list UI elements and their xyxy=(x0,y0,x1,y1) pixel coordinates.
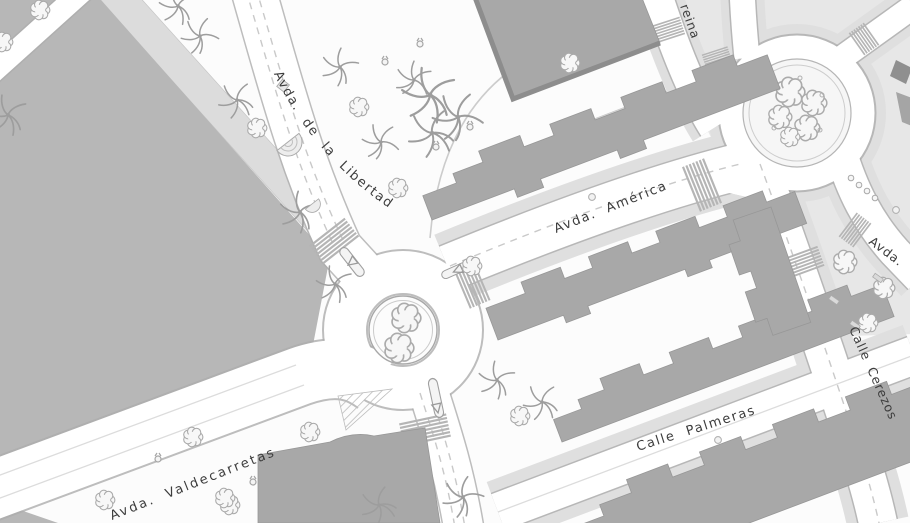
shrub-icon xyxy=(392,303,421,332)
shrub-icon xyxy=(385,333,414,362)
map-viewport[interactable]: Avda. de la Libertad Avda. América Calle… xyxy=(0,0,910,523)
shrub-icon xyxy=(511,406,530,426)
shrub-icon xyxy=(834,250,857,274)
manhole-icon xyxy=(715,437,722,444)
bollard-icon xyxy=(872,195,878,201)
shrub-icon xyxy=(769,105,792,129)
bollard-icon xyxy=(864,188,870,194)
shrub-icon xyxy=(802,90,827,115)
manhole-icon xyxy=(589,194,596,201)
shrub-icon xyxy=(301,422,320,442)
map-canvas[interactable]: Avda. de la Libertad Avda. América Calle… xyxy=(0,0,910,523)
road-north xyxy=(742,0,747,58)
shrub-icon xyxy=(463,256,482,276)
shrub-icon xyxy=(184,427,203,447)
bollard-icon xyxy=(848,175,854,181)
shrub-icon xyxy=(31,0,50,20)
shrub-icon xyxy=(350,97,369,117)
shrub-icon xyxy=(389,178,408,198)
shrub-icon xyxy=(781,127,800,147)
manhole-icon xyxy=(893,207,900,214)
shrub-icon xyxy=(561,53,580,73)
bollard-icon xyxy=(856,182,862,188)
shrub-icon xyxy=(248,118,267,138)
shrub-icon xyxy=(96,490,115,510)
shrub-icon xyxy=(874,277,895,299)
shrub-icon xyxy=(776,77,805,106)
roundabout xyxy=(369,296,437,364)
shrub-icon xyxy=(216,488,235,508)
